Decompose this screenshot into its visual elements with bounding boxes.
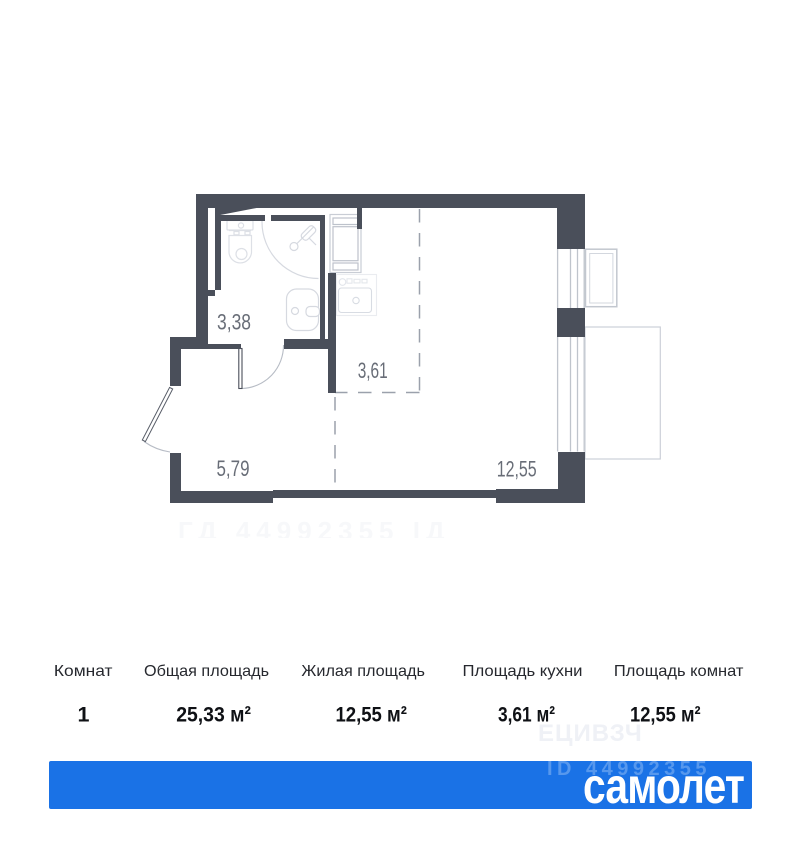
svg-text:12,55 м²: 12,55 м² xyxy=(630,702,701,726)
svg-text:3,38: 3,38 xyxy=(217,310,251,335)
svg-text:Площадь кухни: Площадь кухни xyxy=(463,663,583,680)
svg-text:3,61: 3,61 xyxy=(358,358,388,383)
svg-text:3,61 м²: 3,61 м² xyxy=(498,702,555,726)
svg-text:Комнат: Комнат xyxy=(54,663,113,680)
svg-text:12,55 м²: 12,55 м² xyxy=(335,702,407,726)
svg-text:12,55: 12,55 xyxy=(497,456,537,481)
svg-text:Жилая площадь: Жилая площадь xyxy=(301,663,425,680)
svg-text:25,33 м²: 25,33 м² xyxy=(176,702,251,726)
svg-text:Общая площадь: Общая площадь xyxy=(144,663,269,680)
svg-text:5,79: 5,79 xyxy=(217,456,250,481)
svg-text:1: 1 xyxy=(78,702,90,726)
svg-text:Площадь комнат: Площадь комнат xyxy=(614,663,744,680)
